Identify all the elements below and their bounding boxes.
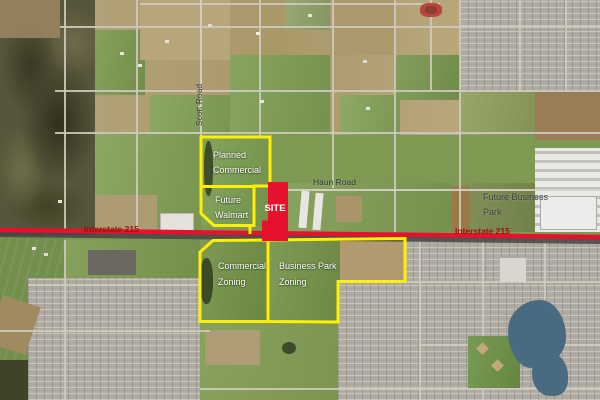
- zone-label-commercial-zoning: Commercial Zoning: [218, 258, 266, 290]
- scott-road-label: Scott Road: [194, 84, 205, 126]
- zone-label-line: Zoning: [218, 274, 266, 290]
- zone-label-planned-commercial: Planned Commercial: [213, 148, 261, 178]
- zone-label-line: Zoning: [279, 274, 337, 290]
- zone-label-line: Commercial: [213, 163, 261, 178]
- interstate-215-label-east: Interstate 215: [455, 226, 510, 236]
- zone-label-line: Business Park: [279, 258, 337, 274]
- haun-road-label: Haun Road: [313, 177, 356, 188]
- site-label: SITE: [261, 203, 289, 214]
- zone-label-line: Commercial: [218, 258, 266, 274]
- zone-label-line: Park: [483, 205, 548, 220]
- zone-label-line: Future Business: [483, 190, 548, 205]
- zone-label-line: Planned: [213, 148, 261, 163]
- aerial-map: Planned Commercial Future Walmart Commer…: [0, 0, 600, 400]
- zone-label-business-park-zoning: Business Park Zoning: [279, 258, 337, 290]
- zone-label-line: Walmart: [215, 208, 248, 223]
- zone-label-future-business-park: Future Business Park: [483, 190, 548, 220]
- zone-label-line: Future: [215, 193, 248, 208]
- interstate-215-label-west: Interstate 215: [84, 224, 139, 234]
- zone-label-future-walmart: Future Walmart: [215, 193, 248, 223]
